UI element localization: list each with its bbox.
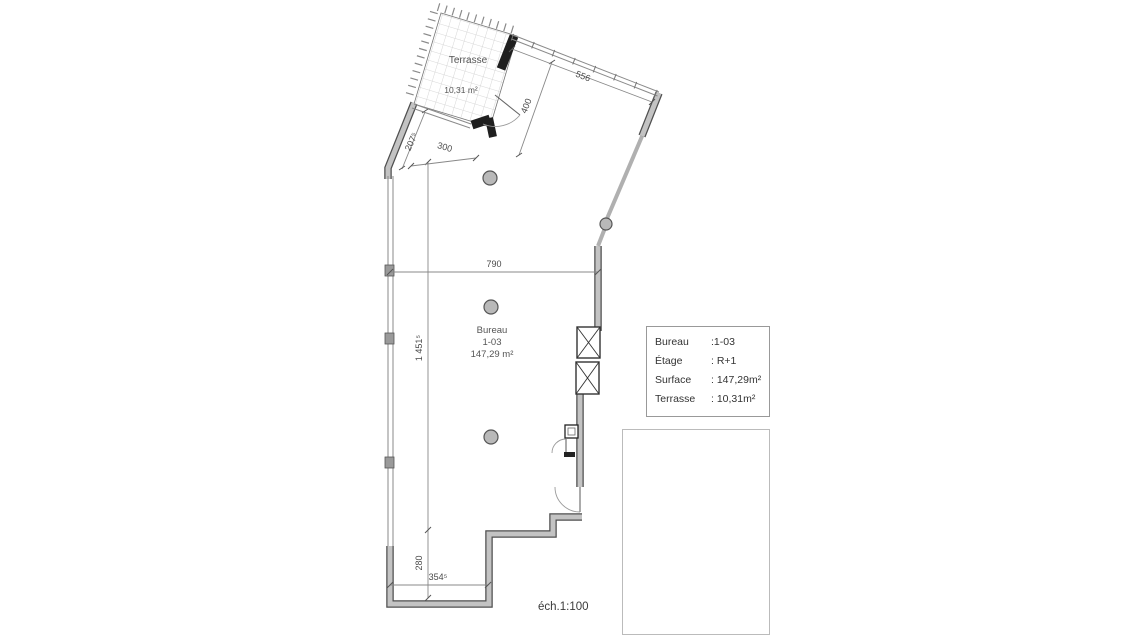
- info-row-etage: Étage : R+1: [655, 351, 769, 370]
- dimension-label-354: 354⁵: [429, 572, 448, 582]
- dimension-label-400: 400: [519, 97, 534, 115]
- wc-wall-stub: [564, 452, 575, 457]
- room-number: 1-03: [482, 337, 501, 348]
- info-row-bureau: Bureau :1-03: [655, 332, 769, 351]
- floor-plan-page: Terrasse 10,31 m²: [0, 0, 1130, 636]
- wc-door-arc: [552, 439, 566, 453]
- dimension-label-1451: 1 451⁵: [414, 335, 424, 362]
- info-label: Terrasse: [655, 393, 711, 405]
- info-value: : R+1: [711, 355, 736, 367]
- floor-plan-drawing: Terrasse 10,31 m²: [0, 0, 1130, 636]
- column-icon: [484, 430, 498, 444]
- dimension-label-300: 300: [436, 140, 453, 154]
- office-walls: [385, 35, 659, 604]
- office-room-label: Bureau 1-03 147,29 m²: [471, 325, 514, 360]
- info-value: :1-03: [711, 336, 735, 348]
- info-label: Bureau: [655, 336, 711, 348]
- info-value: : 10,31m²: [711, 393, 755, 405]
- info-label: Surface: [655, 374, 711, 386]
- terrace-area-label: 10,31 m²: [444, 85, 478, 95]
- column-icon: [600, 218, 612, 230]
- dimension-annotations: 790 1 451⁵ 280 354⁵ 300 207⁵ 400 556: [387, 46, 655, 601]
- entrance-door-arc: [555, 487, 580, 512]
- room-name: Bureau: [477, 325, 508, 336]
- right-window-band: [606, 134, 643, 221]
- info-row-terrasse: Terrasse : 10,31m²: [655, 389, 769, 408]
- scale-label: éch.1:100: [538, 601, 589, 613]
- info-row-surface: Surface : 147,29m²: [655, 370, 769, 389]
- unit-info-table: Bureau :1-03 Étage : R+1 Surface : 147,2…: [646, 326, 770, 417]
- column-icon: [484, 300, 498, 314]
- info-value: : 147,29m²: [711, 374, 761, 386]
- dimension-label-790: 790: [486, 259, 501, 269]
- dimension-label-556: 556: [574, 69, 592, 84]
- column-icon: [483, 171, 497, 185]
- keyplan-frame: [622, 429, 770, 635]
- dimension-label-280: 280: [414, 555, 424, 570]
- structural-columns: [483, 171, 612, 444]
- glazed-facade: [513, 35, 659, 92]
- info-label: Étage: [655, 355, 711, 367]
- terrace-door-leaf: [495, 95, 520, 115]
- terrace-label: Terrasse: [449, 55, 488, 66]
- room-surface: 147,29 m²: [471, 349, 514, 360]
